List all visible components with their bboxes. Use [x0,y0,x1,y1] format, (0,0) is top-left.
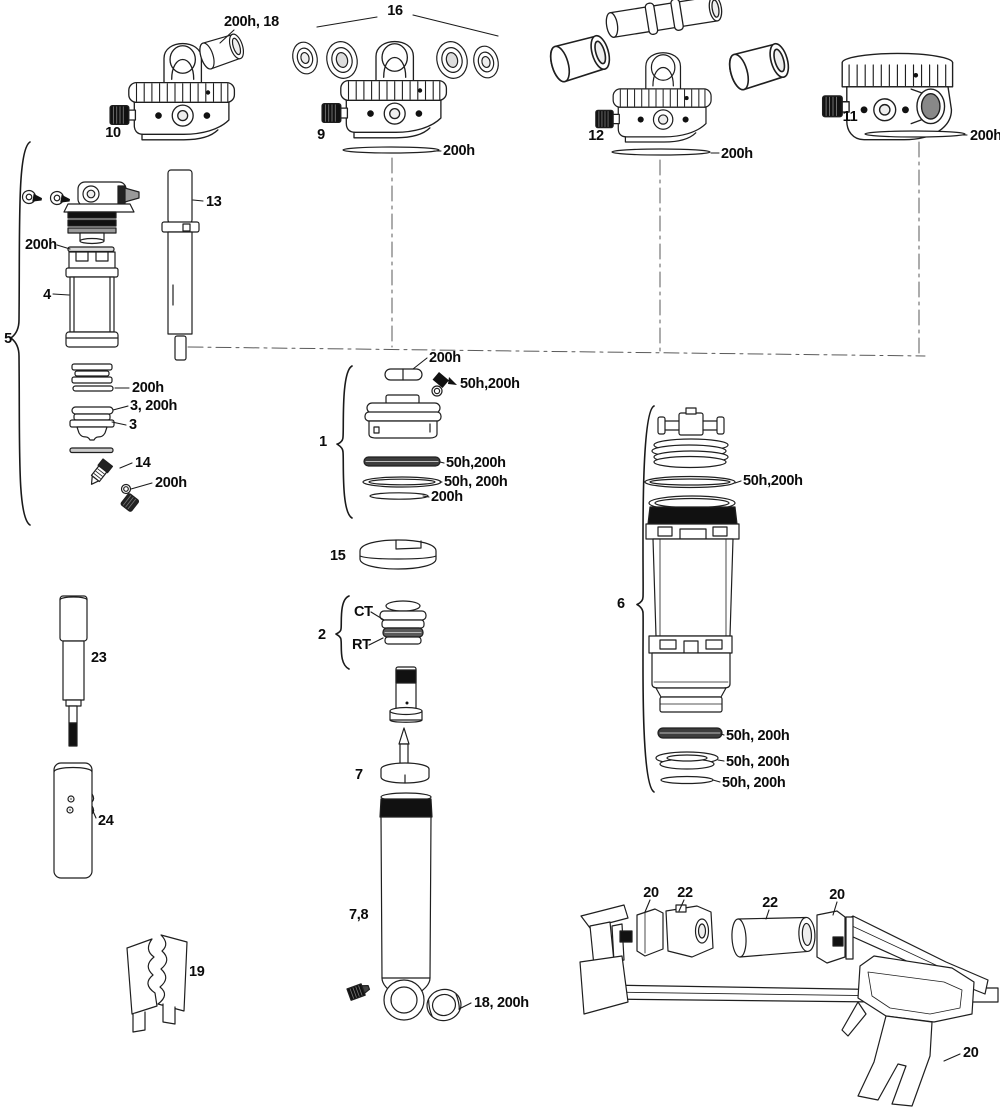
bushing-18-bottom [424,986,464,1023]
label-group-16: 16 [387,3,403,19]
screw-pair [21,189,70,206]
label-shim-5: 200h [25,237,57,253]
seal-disc-11 [865,131,965,137]
bracket-group-2 [336,596,349,669]
bushing-right [726,41,792,92]
part-6-air-can-group [645,408,739,784]
part-7-needle [381,728,429,783]
callout-labels: 200h, 18 16 10 9 200h 12 200h 11 200h 13… [4,3,1000,1061]
label-part-23: 23 [91,650,107,666]
label-part-3: 3 [129,417,137,433]
label-group-1: 1 [319,434,327,450]
label-part-24: 24 [98,813,114,829]
label-cap-1: 200h [429,350,461,366]
label-part-11: 11 [843,109,858,125]
label-ring-6b: 50h, 200h [726,754,789,770]
label-part-13: 13 [206,194,222,210]
bleed-screw [347,982,371,1000]
bushing-18-top [197,32,246,71]
label-part-15: 15 [330,548,346,564]
diagram-root: 200h, 18 16 10 9 200h 12 200h 11 200h 13… [4,0,1000,1106]
piston-stack [72,364,113,391]
clamp-trigger [842,1002,866,1036]
rebound-adjuster-assembly [64,182,139,244]
label-ring-3: 3, 200h [130,398,177,414]
label-seal-9: 200h [443,143,475,159]
seal-disc-9 [343,147,439,153]
label-part-9: 9 [317,127,325,143]
label-oring-14: 200h [155,475,187,491]
mount-washer-icon [470,44,501,81]
label-part-7: 7 [355,767,363,783]
mount-bearing-icon [323,38,361,81]
mount-washer-icon [289,40,320,77]
exploded-parts-diagram: 200h, 18 16 10 9 200h 12 200h 11 200h 13… [0,0,1000,1109]
part-10-group [110,32,246,140]
label-ct: CT [354,604,373,620]
mount-bearing-icon [433,38,471,81]
label-ring-6a: 50h, 200h [726,728,789,744]
center-line-horizontal [188,347,925,356]
sleeve-22-tube [731,915,816,957]
label-tool-20-left: 20 [643,885,659,901]
part-11-group [823,53,965,139]
part-4-reservoir [66,252,118,347]
mount-pin [604,0,724,41]
part-19-clamp-blocks [127,935,187,1032]
label-bushing-bottom: 18, 200h [474,995,529,1011]
seal-disc-12 [612,149,710,155]
label-seal-11: 200h [970,128,1000,144]
label-part-12: 12 [588,128,604,144]
part-23-rod [60,596,87,746]
label-tool-22-block: 22 [677,885,693,901]
bracket-group-1 [337,366,352,518]
label-pin-1: 50h,200h [460,376,520,392]
label-seal-12: 200h [721,146,753,162]
label-oring-6: 50h,200h [743,473,803,489]
label-ring-1a: 50h,200h [446,455,506,471]
part-3-piston [70,407,114,453]
adapter-22-block [666,905,713,957]
bushing-left [547,33,613,84]
part-24-sleeve [54,763,94,878]
shim-200h [68,247,114,252]
label-tool-20-right: 20 [829,887,845,903]
part-15-collar [360,540,436,569]
label-part-14: 14 [135,455,151,471]
clamp-handle [858,1016,932,1106]
part-14-valve [86,459,139,512]
label-part-4: 4 [43,287,51,303]
label-group-2: 2 [318,627,326,643]
clamp-tool-group [580,905,998,1106]
label-part-78: 7,8 [349,907,368,923]
label-group-5: 5 [4,331,12,347]
label-bushing-top: 200h, 18 [224,14,279,30]
label-ring-6c: 50h, 200h [722,775,785,791]
part-12-group [547,0,792,155]
group-1-seal-head [363,369,449,499]
label-rt: RT [352,637,371,653]
label-group-6: 6 [617,596,625,612]
label-glide-5: 200h [132,380,164,396]
label-part-19: 19 [189,964,205,980]
bracket-group-6 [637,406,654,792]
label-part-10: 10 [105,125,121,141]
label-tool-22-tube: 22 [762,895,778,911]
label-tool-20-handle: 20 [963,1045,979,1061]
part-13-shaft [162,170,199,360]
group-2-ct-rt [380,601,426,644]
adapter-20-right [817,911,853,963]
label-ring-1b: 50h, 200h [444,474,507,490]
ifp-piston [390,667,422,722]
label-ring-1c: 200h [431,489,463,505]
